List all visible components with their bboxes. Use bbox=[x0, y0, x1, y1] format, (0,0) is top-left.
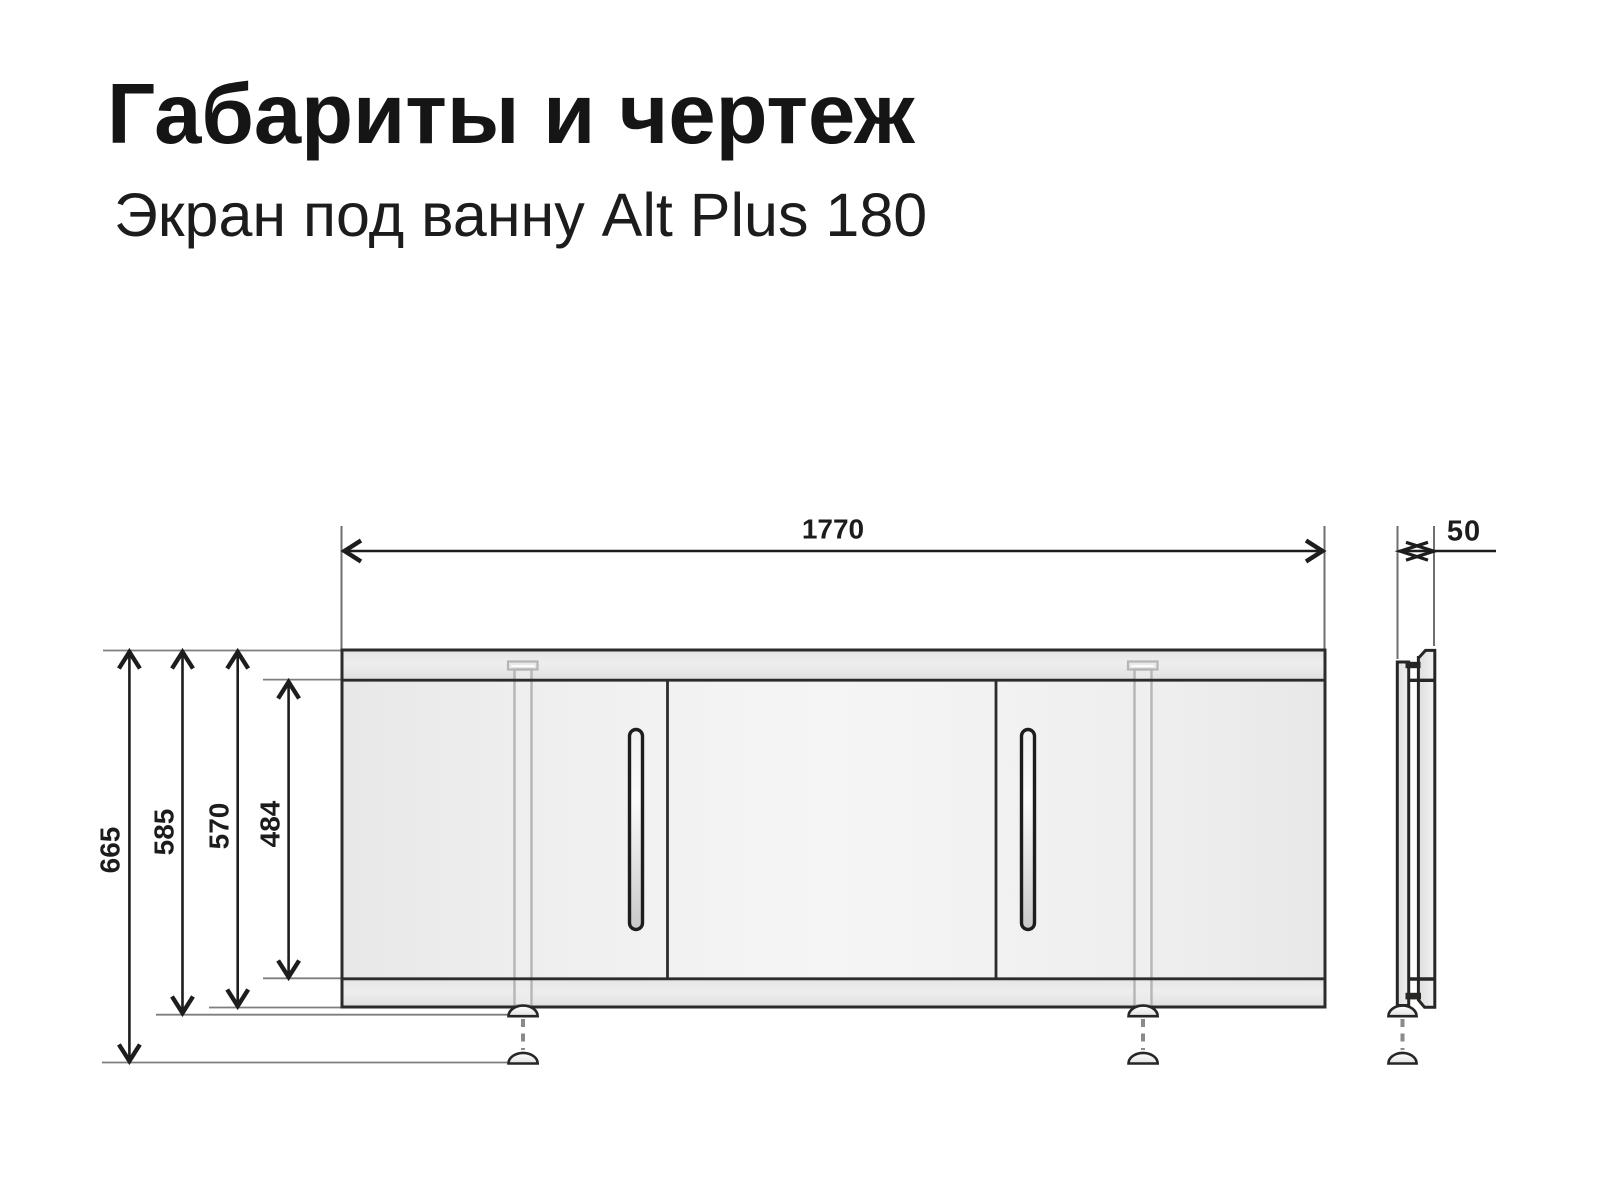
svg-text:Экран под ванну Alt Plus 180: Экран под ванну Alt Plus 180 bbox=[114, 181, 927, 249]
svg-text:1770: 1770 bbox=[802, 514, 864, 545]
svg-text:Габариты и чертеж: Габариты и чертеж bbox=[107, 67, 915, 162]
svg-text:570: 570 bbox=[204, 803, 235, 850]
svg-text:585: 585 bbox=[149, 809, 180, 856]
svg-text:50: 50 bbox=[1447, 516, 1481, 548]
svg-text:665: 665 bbox=[95, 827, 126, 874]
svg-text:484: 484 bbox=[255, 800, 286, 847]
